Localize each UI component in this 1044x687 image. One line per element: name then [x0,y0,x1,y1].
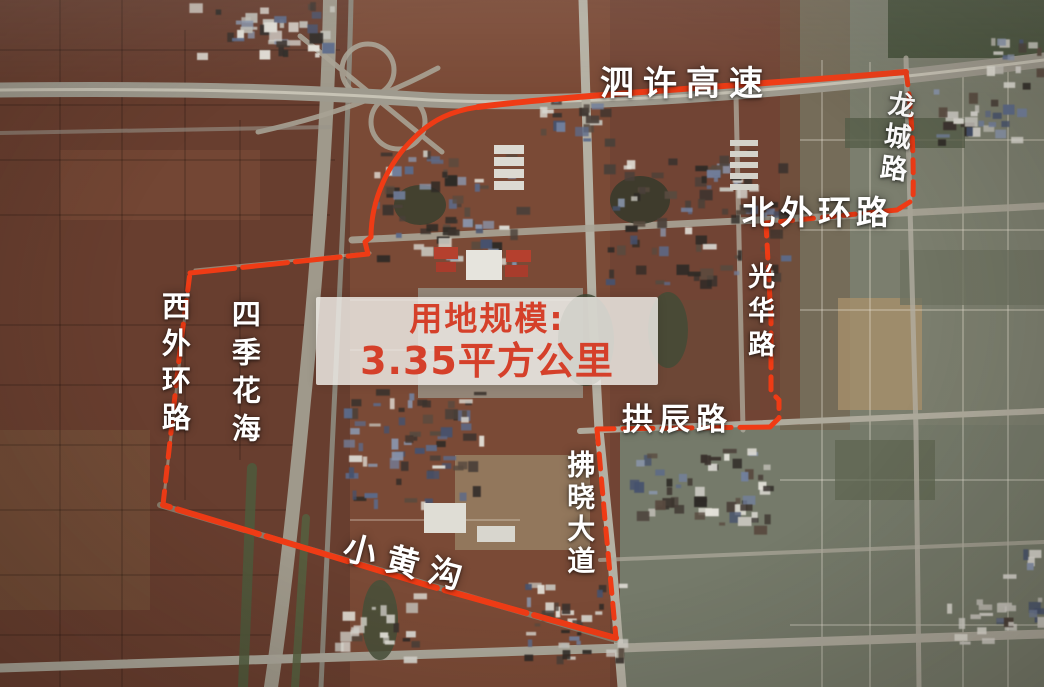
road-label-west-outer-ring-road: 西外环路 [158,291,189,439]
road-label-fuxiao-avenue: 拂晓大道 [564,450,594,578]
area-label-four-seasons-flower-sea: 四季花海 [228,299,259,451]
land-area-title: 用地规模: [409,299,564,339]
road-label-sixu-expressway: 泗许高速 [600,66,772,103]
road-label-gongchen-road: 拱辰路 [622,404,733,437]
road-label-guanghua-road: 光华路 [744,262,773,364]
road-label-north-outer-ring-road: 北外环路 [742,195,894,231]
land-area-value: 3.35平方公里 [360,339,614,383]
land-area-callout: 用地规模: 3.35平方公里 [316,297,658,385]
satellite-map: 泗许高速 龙城路 北外环路 光华路 拱辰路 拂晓大道 小黄沟 西外环路 四季花海… [0,0,1044,687]
